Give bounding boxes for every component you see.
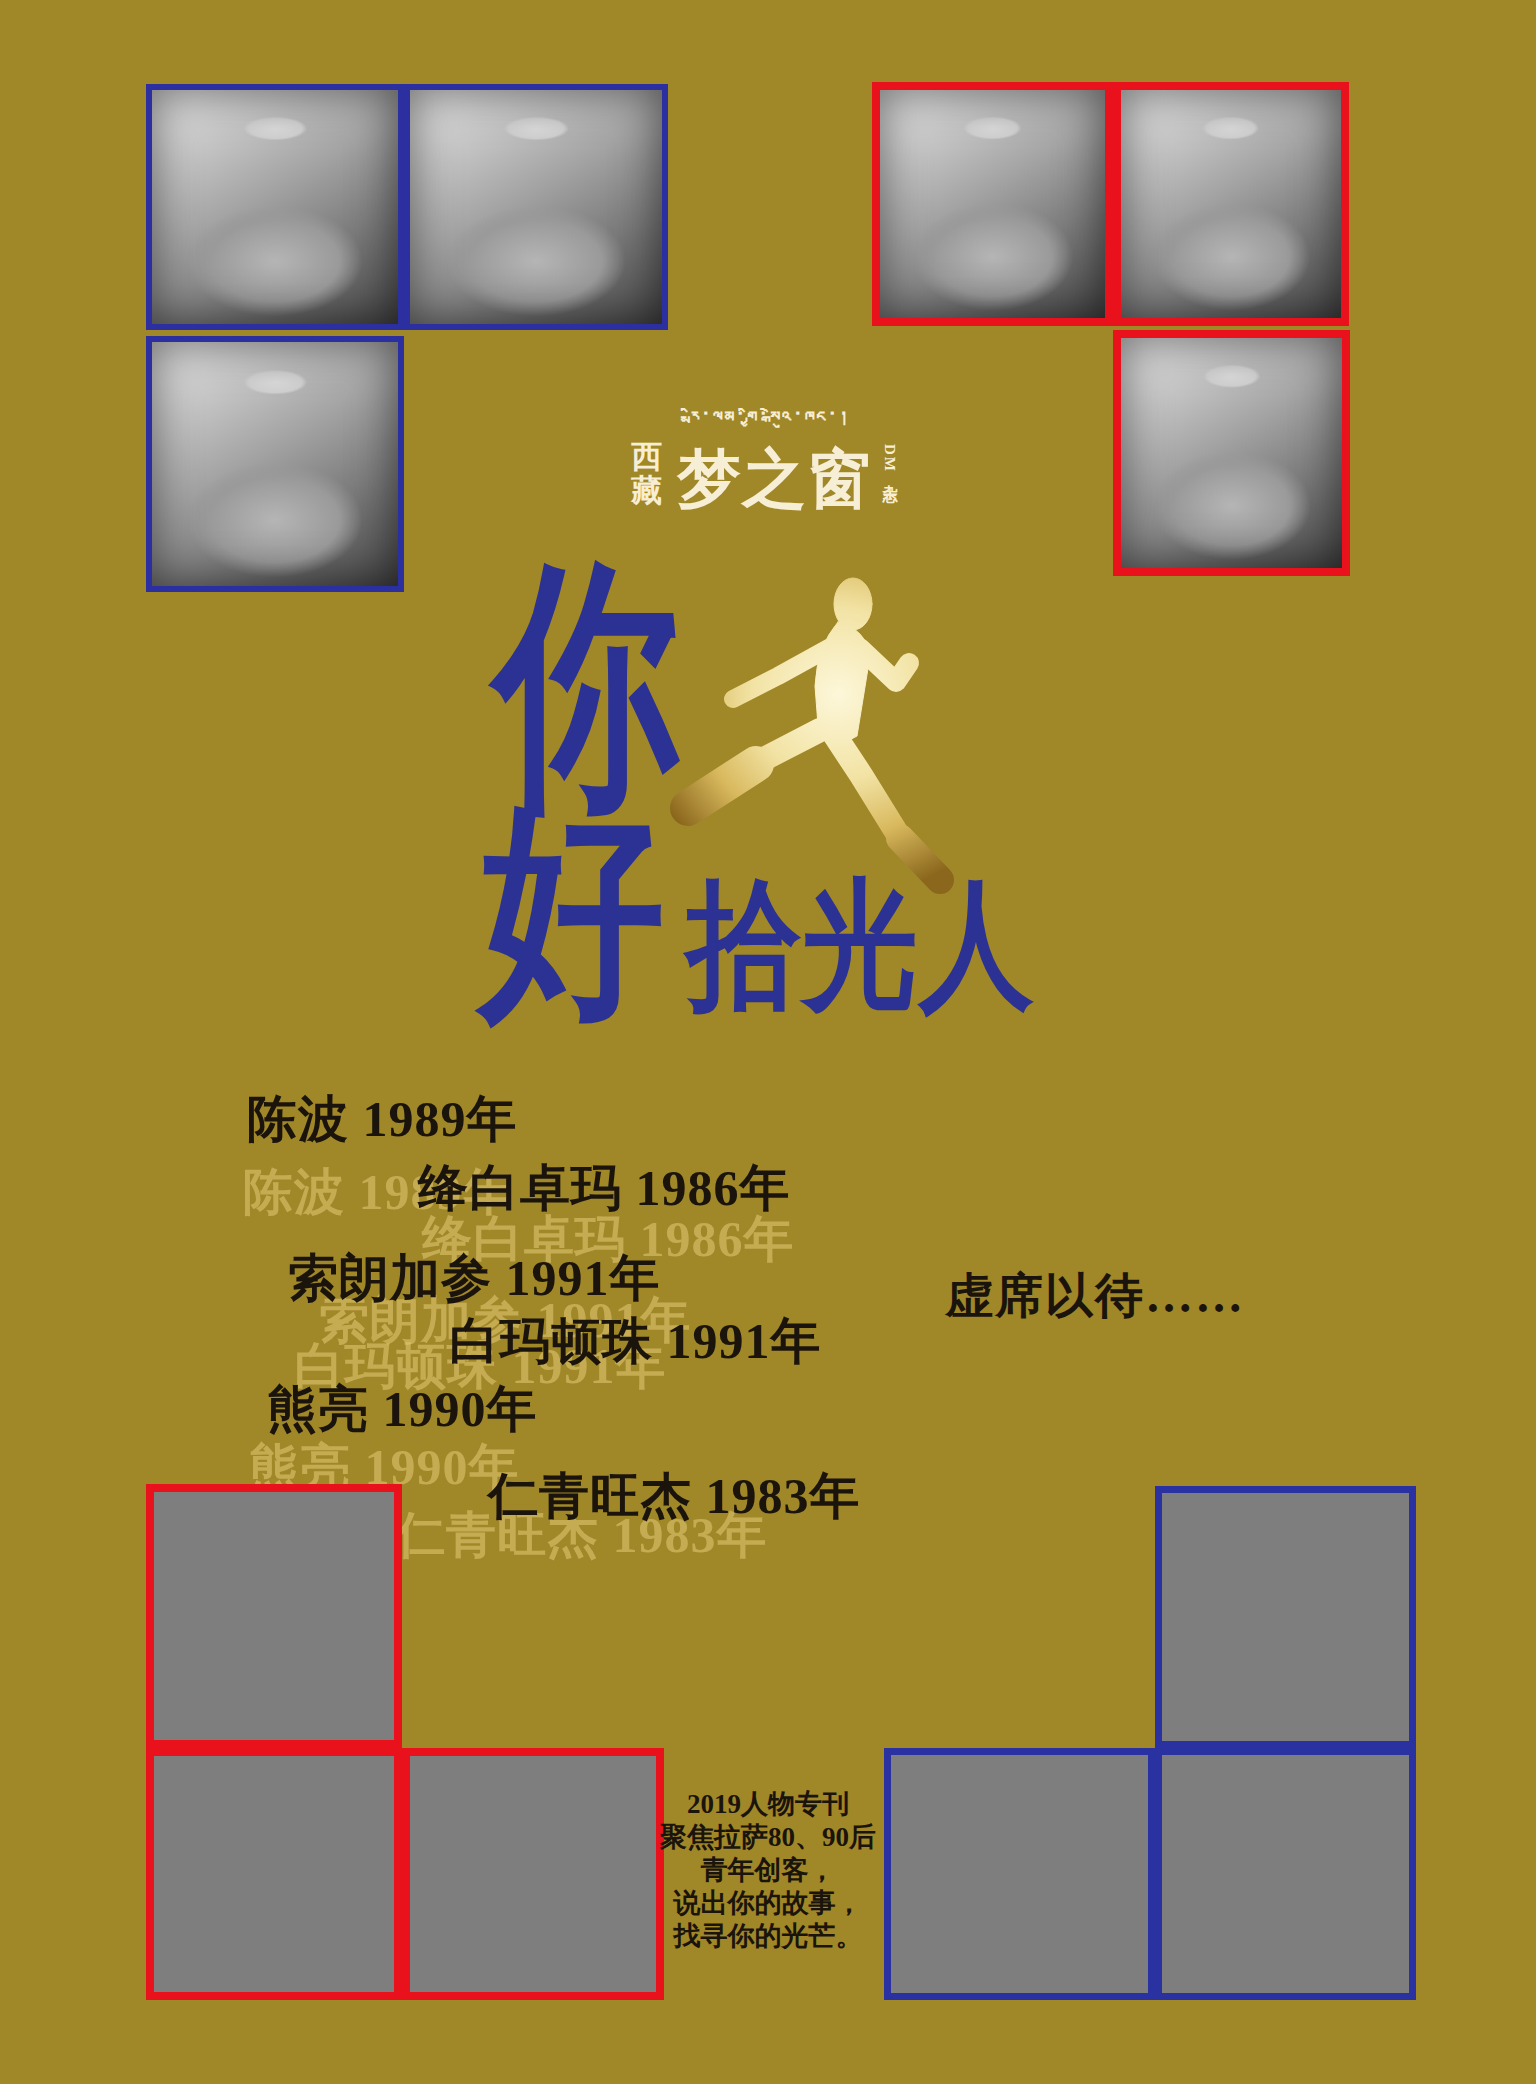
bw-portrait-image	[152, 342, 398, 586]
footer-line: 找寻你的光芒。	[608, 1920, 928, 1953]
runner-front-leg	[832, 731, 900, 838]
footer-line: 2019人物专刊	[608, 1788, 928, 1821]
masthead-tibetan-script: རྨི་ལམ་གྱི་སྒེའུ་ཁང་།	[648, 408, 892, 430]
empty-photo-slot-blue-top	[1155, 1486, 1416, 1748]
footer-line: 说出你的故事，	[608, 1887, 928, 1920]
vacancy-note: 虚席以待……	[945, 1264, 1245, 1328]
footer-line: 聚焦拉萨80、90后	[608, 1821, 928, 1854]
photo-woman-drinking-tea	[404, 84, 668, 330]
photo-man-reading-book	[872, 82, 1113, 326]
roster-entry: 索朗加参 1991年	[288, 1245, 661, 1312]
photo-man-toasting	[146, 84, 404, 330]
photo-man-traditional-robe	[146, 336, 404, 592]
photo-man-praying	[1113, 330, 1350, 576]
bw-portrait-image	[1121, 338, 1342, 568]
headline-char-hao: 好	[480, 798, 664, 1028]
masthead-region-stacked: 西藏	[630, 440, 663, 508]
runner-front-arm	[860, 648, 909, 682]
roster-entry: 熊亮 1990年	[267, 1376, 538, 1443]
roster-entry: 绛白卓玛 1986年	[418, 1155, 791, 1222]
runner-rear-shoe	[688, 764, 756, 808]
runner-front-foot	[900, 838, 940, 880]
empty-photo-slot-red-top	[146, 1484, 402, 1748]
magazine-cover-poster: རྨི་ལམ་གྱི་སྒེའུ་ཁང་། 西藏 梦之窗 DM杂志 你 好 拾光…	[0, 0, 1536, 2084]
roster-entry: 陈波 1989年	[247, 1086, 518, 1153]
roster-entry: 白玛顿珠 1991年	[449, 1308, 822, 1375]
runner-icon	[660, 566, 960, 906]
masthead-magazine-title: 梦之窗	[677, 436, 872, 523]
footer-blurb: 2019人物专刊 聚焦拉萨80、90后 青年创客， 说出你的故事， 找寻你的光芒…	[608, 1788, 928, 1953]
bw-portrait-image	[152, 90, 398, 324]
empty-photo-slot-blue-bottom-right	[1155, 1748, 1416, 2000]
photo-man-suit-tea	[1113, 82, 1349, 326]
bw-portrait-image	[1121, 90, 1341, 318]
masthead-edition-stacked: DM杂志	[880, 444, 899, 514]
bw-portrait-image	[410, 90, 662, 324]
bw-portrait-image	[880, 90, 1105, 318]
headline-char-ni: 你	[494, 556, 680, 822]
roster-entry: 仁青旺杰 1983年	[488, 1463, 861, 1530]
empty-photo-slot-red-bottom-left	[146, 1748, 402, 2000]
footer-line: 青年创客，	[608, 1854, 928, 1887]
